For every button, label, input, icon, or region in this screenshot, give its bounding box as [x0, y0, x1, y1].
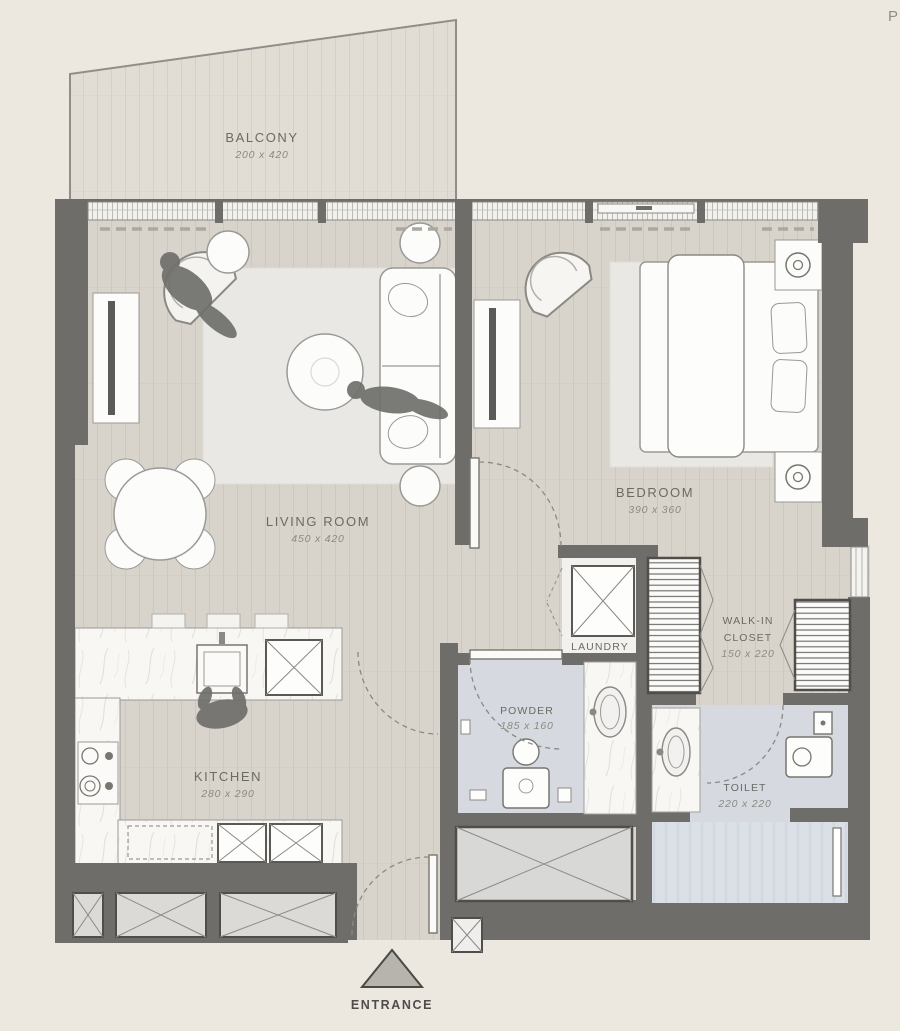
- wall-segment: [55, 199, 88, 445]
- bedroom-dims: 390 x 360: [628, 504, 681, 516]
- tv-console-bedroom: [474, 300, 520, 428]
- entrance-label: ENTRANCE: [351, 998, 433, 1012]
- powder-bin: [558, 788, 571, 802]
- service-shaft: [456, 827, 632, 901]
- laundry-label: LAUNDRY: [571, 641, 629, 653]
- floor-plan-svg: BALCONY 200 x 420 LIVING ROOM 450 x 420 …: [0, 0, 900, 1031]
- nightstand-bottom: [775, 452, 822, 502]
- kitchen-dims: 280 x 290: [200, 788, 254, 800]
- oven-box: [266, 640, 322, 695]
- floor-plan-page: BALCONY 200 x 420 LIVING ROOM 450 x 420 …: [0, 0, 900, 1031]
- nightstand-top: [775, 240, 822, 290]
- toilet-vanity: [652, 708, 700, 812]
- side-window: [851, 547, 868, 597]
- faucet: [590, 709, 597, 716]
- dining-table: [114, 468, 206, 560]
- faucet: [657, 749, 664, 756]
- pillow: [771, 359, 808, 413]
- window-glazing: [88, 202, 818, 220]
- wall-segment: [822, 518, 868, 547]
- wall-segment: [55, 445, 75, 893]
- tv-screen: [108, 301, 115, 415]
- wall-segment: [790, 808, 848, 822]
- wall-segment: [783, 693, 848, 705]
- powder-dims: 185 x 160: [500, 720, 553, 732]
- window-mullion: [697, 199, 705, 223]
- storage-box: [73, 893, 103, 937]
- sliding-door-handle: [636, 206, 652, 210]
- toilet-dims: 220 x 220: [717, 798, 771, 810]
- wall-segment: [345, 863, 357, 940]
- wall-cabinet: [152, 614, 185, 628]
- wall-segment: [440, 813, 652, 827]
- window-mullion: [318, 199, 326, 223]
- toilet-paper-holder: [461, 720, 470, 734]
- storage-box: [116, 893, 206, 937]
- side-table: [207, 231, 249, 273]
- burner: [105, 782, 113, 790]
- stove: [78, 742, 118, 804]
- faucet: [219, 632, 225, 644]
- coffee-table: [287, 334, 363, 410]
- kitchen-label: KITCHEN: [194, 769, 262, 784]
- powder-accessory: [470, 790, 486, 800]
- living-room-dims: 450 x 420: [291, 533, 344, 545]
- powder-vanity: [584, 662, 636, 814]
- shower-floor: [652, 822, 848, 905]
- window-mullion: [585, 199, 593, 223]
- storage-box: [220, 893, 336, 937]
- living-room-label: LIVING ROOM: [266, 514, 370, 529]
- appliance-box: [218, 824, 266, 862]
- wall-segment: [822, 240, 853, 518]
- walk-in-closet-label-1: WALK-IN: [722, 615, 773, 627]
- wall-segment: [636, 693, 696, 705]
- door-leaf: [429, 855, 437, 933]
- balcony-dims: 200 x 420: [234, 149, 288, 161]
- wall-cabinet: [207, 614, 240, 628]
- balcony-label: BALCONY: [225, 130, 298, 145]
- tv-console-living: [93, 293, 139, 423]
- bedroom-label: BEDROOM: [616, 485, 694, 500]
- pillow: [771, 302, 808, 354]
- corner-letter: P: [888, 8, 898, 25]
- wall-cabinet: [255, 614, 288, 628]
- door-leaf: [470, 650, 562, 659]
- window-mullion: [455, 199, 472, 223]
- window-mullion: [215, 199, 223, 223]
- walk-in-closet-dims: 150 x 220: [721, 648, 774, 660]
- powder-label: POWDER: [500, 705, 554, 717]
- small-shaft-box: [452, 918, 482, 952]
- dining-set: [105, 459, 215, 569]
- shower-glass-door: [833, 828, 841, 896]
- walk-in-closet-label-2: CLOSET: [724, 632, 773, 644]
- bed-blanket: [668, 255, 744, 457]
- sofa-side-table-bottom: [400, 466, 440, 506]
- laundry-machine: [572, 566, 634, 636]
- wall-segment: [640, 903, 870, 940]
- wall-segment: [818, 199, 868, 243]
- door-leaf: [470, 458, 479, 548]
- wall-segment: [440, 653, 470, 665]
- wall-segment: [848, 597, 870, 940]
- tv-screen: [489, 308, 496, 420]
- toilet-label: TOILET: [723, 782, 766, 794]
- sink-basin: [662, 728, 690, 776]
- burner: [105, 752, 113, 760]
- appliance-box: [270, 824, 322, 862]
